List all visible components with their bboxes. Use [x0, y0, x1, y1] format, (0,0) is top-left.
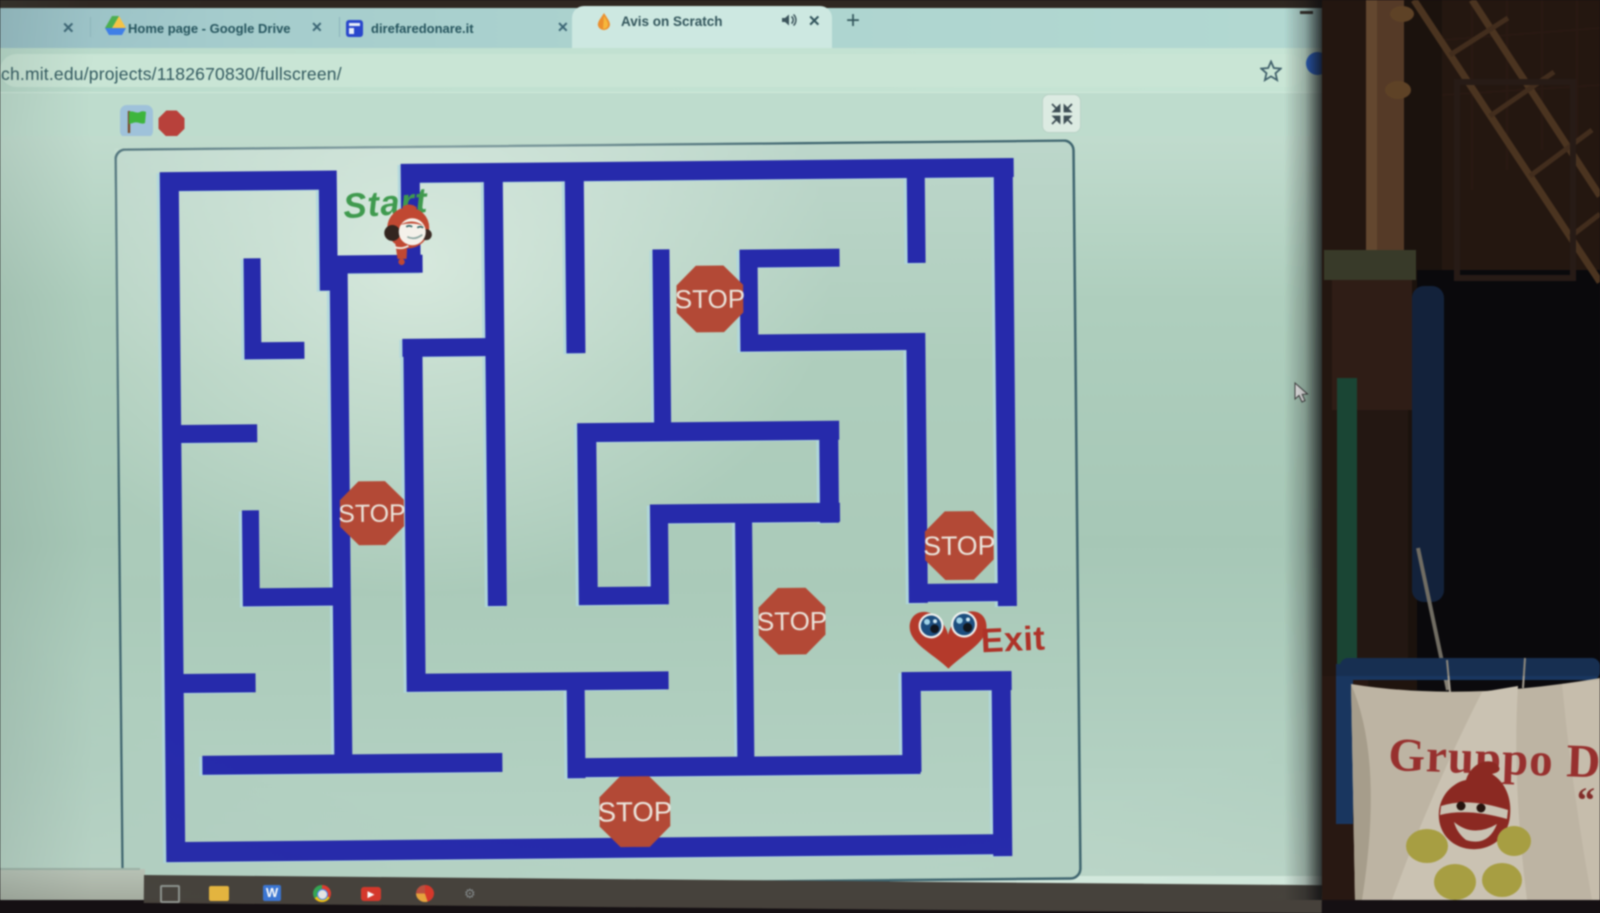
svg-text:Exit: Exit	[980, 620, 1046, 661]
